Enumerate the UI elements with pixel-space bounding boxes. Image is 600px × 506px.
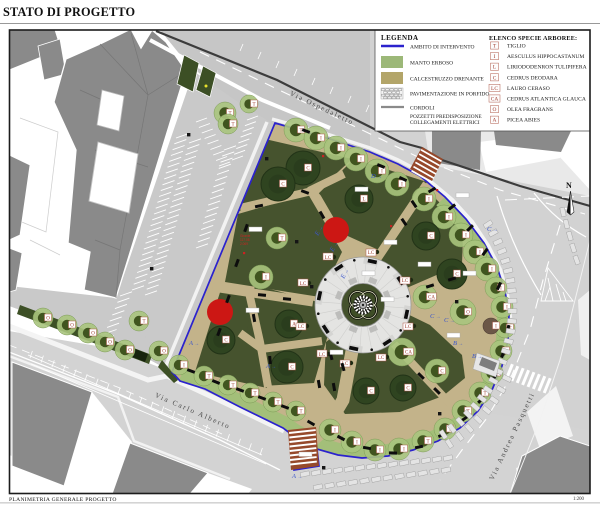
svg-text:CEDRUS DEODARA: CEDRUS DEODARA bbox=[507, 75, 558, 81]
svg-text:T: T bbox=[142, 320, 145, 325]
svg-text:T: T bbox=[231, 123, 234, 128]
svg-text:L: L bbox=[362, 198, 365, 203]
svg-text:LC: LC bbox=[300, 282, 307, 287]
svg-text:MANTO ERBOSO: MANTO ERBOSO bbox=[410, 61, 453, 67]
svg-text:I: I bbox=[494, 54, 496, 60]
svg-text:ELENCO SPECIE ARBOREE:: ELENCO SPECIE ARBOREE: bbox=[489, 35, 577, 42]
svg-text:T: T bbox=[280, 237, 283, 242]
svg-text:D →: D → bbox=[370, 173, 382, 180]
svg-text:AESCULUS HIPPOCASTANUM: AESCULUS HIPPOCASTANUM bbox=[507, 54, 584, 60]
svg-text:N: N bbox=[566, 181, 572, 190]
svg-text:O: O bbox=[466, 311, 470, 316]
svg-text:T: T bbox=[252, 103, 255, 108]
svg-text:2.069: 2.069 bbox=[240, 242, 248, 246]
svg-text:CORDOLI: CORDOLI bbox=[410, 106, 435, 112]
svg-text:PICEA ABIES: PICEA ABIES bbox=[507, 118, 540, 124]
svg-text:C →: C → bbox=[444, 317, 455, 324]
svg-text:LAURO CERASO: LAURO CERASO bbox=[507, 86, 550, 92]
svg-text:TIGLIO: TIGLIO bbox=[507, 44, 526, 50]
svg-text:B →: B → bbox=[453, 340, 463, 347]
svg-text:O: O bbox=[70, 324, 74, 329]
svg-text:T: T bbox=[231, 384, 234, 389]
svg-text:T: T bbox=[299, 410, 302, 415]
svg-text:AMBITO DI INTERVENTO: AMBITO DI INTERVENTO bbox=[410, 45, 474, 51]
svg-text:A →: A → bbox=[265, 363, 276, 370]
svg-text:LC: LC bbox=[325, 256, 332, 261]
svg-text:PAVIMENTAZIONE IN PORFIDO: PAVIMENTAZIONE IN PORFIDO bbox=[410, 92, 489, 98]
svg-text:LC: LC bbox=[405, 325, 412, 330]
svg-text:T: T bbox=[276, 401, 279, 406]
svg-text:T: T bbox=[207, 375, 210, 380]
svg-text:A: A bbox=[292, 323, 296, 328]
svg-text:OLEA FRAGRANS: OLEA FRAGRANS bbox=[507, 107, 553, 113]
svg-text:LC: LC bbox=[491, 86, 498, 92]
svg-text:C →: C → bbox=[430, 313, 441, 320]
svg-text:A →: A → bbox=[291, 473, 302, 480]
svg-text:C: C bbox=[493, 75, 497, 81]
svg-text:LC: LC bbox=[319, 353, 326, 358]
svg-text:1:200: 1:200 bbox=[573, 497, 585, 502]
svg-text:STATO DI PROGETTO: STATO DI PROGETTO bbox=[3, 5, 135, 19]
svg-text:CA: CA bbox=[405, 351, 412, 356]
svg-text:LEGENDA: LEGENDA bbox=[381, 34, 418, 42]
svg-text:O: O bbox=[91, 332, 95, 337]
svg-text:COLLEGAMENTI ELETTRICI: COLLEGAMENTI ELETTRICI bbox=[410, 120, 480, 126]
svg-text:O: O bbox=[46, 317, 50, 322]
svg-text:LC: LC bbox=[298, 325, 305, 330]
svg-text:T: T bbox=[253, 392, 256, 397]
svg-text:O: O bbox=[108, 341, 112, 346]
svg-text:B →: B → bbox=[472, 353, 482, 360]
svg-text:O: O bbox=[162, 350, 166, 355]
svg-text:O: O bbox=[128, 349, 132, 354]
svg-text:CALCESTRUZZO DRENANTE: CALCESTRUZZO DRENANTE bbox=[410, 77, 484, 83]
svg-text:PLANIMETRIA GENERALE PROGETTO: PLANIMETRIA GENERALE PROGETTO bbox=[9, 497, 117, 503]
svg-text:LIRIODODENRON TULIPIFERA: LIRIODODENRON TULIPIFERA bbox=[507, 65, 587, 71]
svg-text:T: T bbox=[483, 392, 486, 397]
svg-text:A →: A → bbox=[188, 340, 199, 347]
svg-text:L: L bbox=[493, 65, 496, 71]
svg-text:CA: CA bbox=[491, 97, 499, 103]
svg-text:A: A bbox=[493, 118, 497, 124]
svg-text:T: T bbox=[426, 440, 429, 445]
svg-text:LC: LC bbox=[368, 251, 375, 256]
svg-text:O: O bbox=[493, 107, 497, 113]
svg-text:LC: LC bbox=[402, 279, 409, 284]
svg-text:CA: CA bbox=[428, 296, 435, 301]
svg-text:CEDRUS ATLANTICA GLAUCA: CEDRUS ATLANTICA GLAUCA bbox=[507, 97, 586, 103]
svg-text:C →: C → bbox=[487, 226, 498, 233]
svg-text:LC: LC bbox=[378, 356, 385, 361]
